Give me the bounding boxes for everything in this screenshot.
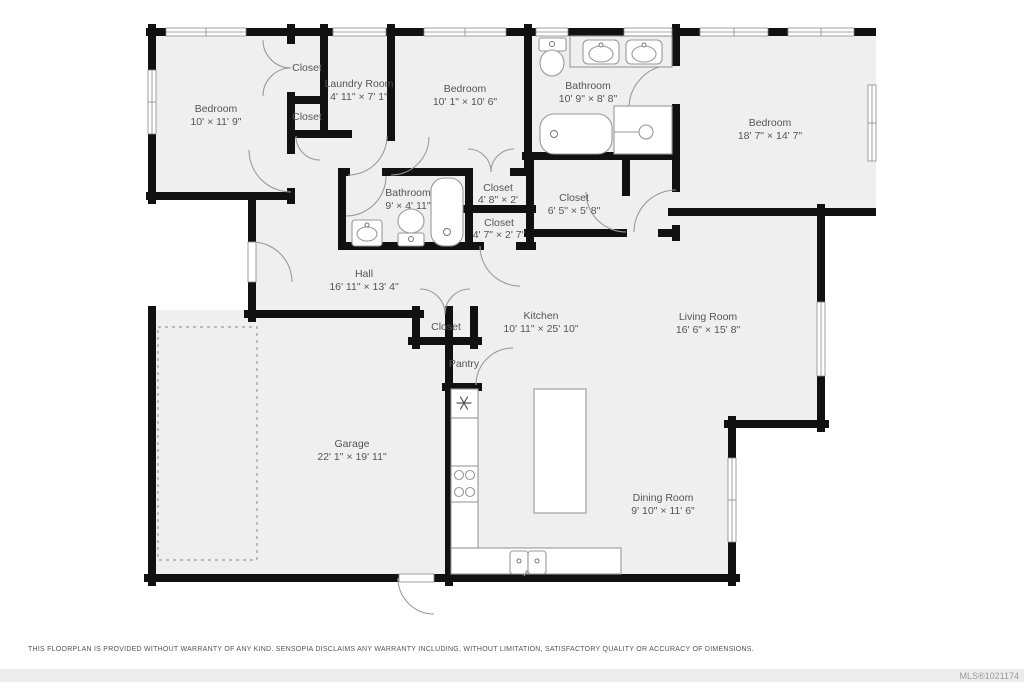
shower-icon bbox=[614, 106, 672, 154]
room-dims: 18' 7" × 14' 7" bbox=[738, 130, 803, 142]
room-dims: 9' × 4' 11" bbox=[385, 200, 430, 212]
room-label-closet-mid: Closet bbox=[292, 111, 322, 123]
back-door-threshold bbox=[399, 574, 434, 582]
sink-icon bbox=[352, 220, 382, 246]
bathtub-icon bbox=[540, 114, 612, 154]
footer-bar bbox=[0, 669, 1024, 682]
room-name: Laundry Room bbox=[325, 78, 394, 90]
kitchen-sink-icon bbox=[510, 551, 546, 576]
room-name: Garage bbox=[334, 438, 369, 450]
room-name: Kitchen bbox=[523, 310, 558, 322]
room-dims: 9' 10" × 11' 6" bbox=[631, 505, 695, 517]
front-door-threshold bbox=[248, 242, 256, 282]
room-label-bedroom1: Bedroom 10' × 11' 9" bbox=[190, 103, 241, 128]
room-dims: 10' 9" × 8' 8" bbox=[559, 93, 618, 105]
bathtub-icon bbox=[431, 178, 463, 246]
room-name: Closet bbox=[483, 182, 513, 194]
room-dims: 22' 1" × 19' 11" bbox=[317, 451, 387, 463]
room-name: Bedroom bbox=[195, 103, 238, 115]
room-label-living: Living Room 16' 6" × 15' 8" bbox=[676, 311, 741, 336]
room-name: Bathroom bbox=[385, 187, 431, 199]
stove-icon bbox=[451, 466, 478, 502]
room-name: Closet bbox=[431, 321, 461, 333]
room-label-closet-top: Closet bbox=[292, 62, 322, 74]
room-label-laundry: Laundry Room 4' 11" × 7' 1" bbox=[325, 78, 394, 103]
disclaimer-text: THIS FLOORPLAN IS PROVIDED WITHOUT WARRA… bbox=[28, 646, 754, 653]
room-label-closet-hall: Closet bbox=[431, 321, 461, 333]
room-dims: 10' 1" × 10' 6" bbox=[433, 96, 498, 108]
room-label-bathroom-hall: Bathroom 9' × 4' 11" bbox=[385, 187, 431, 212]
fridge-icon bbox=[451, 389, 478, 418]
room-dims: 16' 11" × 13' 4" bbox=[329, 281, 399, 293]
floorplan-canvas: Bedroom 10' × 11' 9" Closet Laundry Room… bbox=[0, 0, 1024, 682]
room-name: Bedroom bbox=[444, 83, 487, 95]
room-name: Living Room bbox=[679, 311, 738, 323]
room-name: Pantry bbox=[449, 358, 480, 370]
floor-garage bbox=[148, 310, 453, 582]
room-label-dining: Dining Room 9' 10" × 11' 6" bbox=[631, 492, 695, 517]
room-dims: 10' × 11' 9" bbox=[190, 116, 241, 128]
room-dims: 16' 6" × 15' 8" bbox=[676, 324, 741, 336]
toilet-icon bbox=[398, 209, 424, 246]
room-name: Bathroom bbox=[565, 80, 611, 92]
sink-icon bbox=[583, 40, 619, 64]
room-name: Closet bbox=[484, 217, 514, 229]
room-dims: 4' 11" × 7' 1" bbox=[330, 91, 388, 103]
footer: THIS FLOORPLAN IS PROVIDED WITHOUT WARRA… bbox=[0, 646, 1024, 682]
toilet-icon bbox=[539, 38, 566, 76]
room-dims: 6' 5" × 5' 8" bbox=[548, 205, 601, 217]
room-label-closet-48: Closet 4' 8" × 2' bbox=[478, 182, 518, 206]
room-dims: 4' 8" × 2' bbox=[478, 194, 518, 206]
room-name: Hall bbox=[355, 268, 373, 280]
room-name: Bedroom bbox=[749, 117, 792, 129]
floorplan-page: Bedroom 10' × 11' 9" Closet Laundry Room… bbox=[0, 0, 1024, 682]
sink-icon bbox=[626, 40, 662, 64]
room-dims: 10' 11" × 25' 10" bbox=[503, 323, 578, 335]
room-label-bathroom-main: Bathroom 10' 9" × 8' 8" bbox=[559, 80, 618, 105]
room-label-pantry: Pantry bbox=[449, 358, 480, 370]
kitchen-island bbox=[534, 389, 586, 513]
room-name: Closet bbox=[292, 62, 322, 74]
floor-areas bbox=[148, 28, 876, 582]
room-name: Closet bbox=[292, 111, 322, 123]
room-name: Closet bbox=[559, 192, 589, 204]
mls-number: MLS®1021174 bbox=[959, 671, 1019, 681]
room-name: Dining Room bbox=[633, 492, 694, 504]
room-dims: 4' 7" × 2' 7" bbox=[473, 229, 526, 241]
